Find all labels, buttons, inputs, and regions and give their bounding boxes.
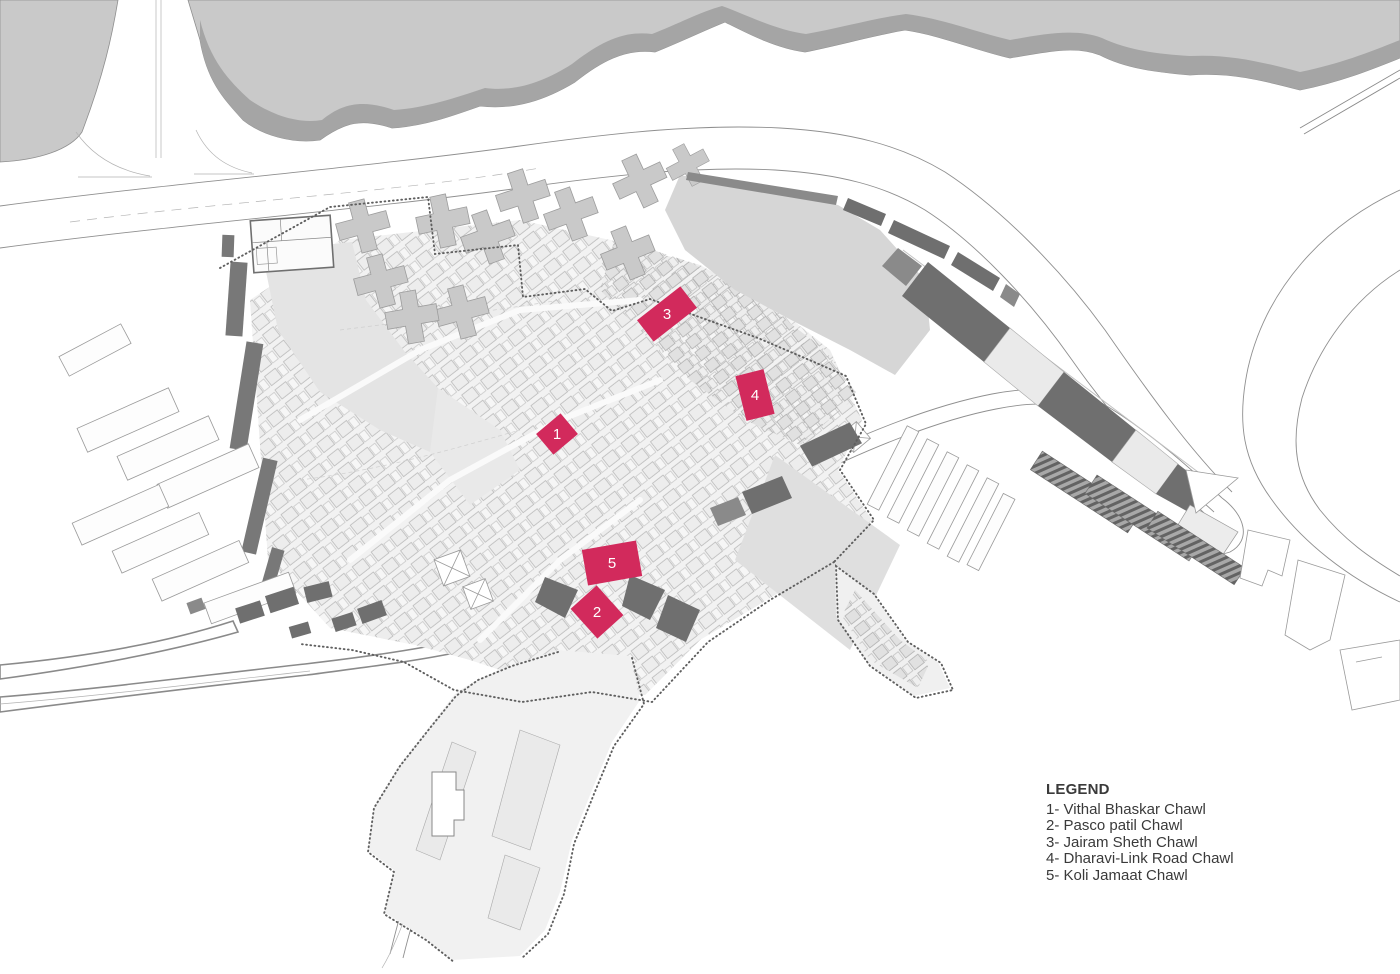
walled-compound <box>250 215 333 272</box>
legend-item-2: 2- Pasco patil Chawl <box>1046 818 1234 835</box>
junction-centerline <box>156 0 161 158</box>
cross-block <box>605 146 674 215</box>
ramp-east <box>194 130 254 174</box>
legend-title: LEGEND <box>1046 782 1234 799</box>
southeast-extension <box>835 565 950 696</box>
channel-lower <box>0 641 459 712</box>
chawl-marker-number: 3 <box>663 306 671 323</box>
ramp-west <box>76 132 152 177</box>
legend: LEGEND 1- Vithal Bhaskar Chawl2- Pasco p… <box>1046 782 1234 885</box>
legend-item-3: 3- Jairam Sheth Chawl <box>1046 835 1234 852</box>
wedge-block <box>882 248 1238 556</box>
river-bend-west <box>0 0 118 162</box>
highway-median <box>70 168 540 222</box>
chawl-marker-number: 4 <box>751 387 759 404</box>
legend-items: 1- Vithal Bhaskar Chawl2- Pasco patil Ch… <box>1046 802 1234 885</box>
east-road-inner <box>1296 270 1400 576</box>
legend-item-5: 5- Koli Jamaat Chawl <box>1046 868 1234 885</box>
chawl-marker-number: 1 <box>553 426 561 443</box>
chawl-marker-number: 2 <box>593 604 601 621</box>
water-layer <box>0 0 1400 162</box>
legend-item-4: 4- Dharavi-Link Road Chawl <box>1046 851 1234 868</box>
legend-item-1: 1- Vithal Bhaskar Chawl <box>1046 802 1234 819</box>
channel-upper <box>0 621 238 679</box>
south-extension <box>368 650 640 960</box>
east-outlined-buildings <box>1240 530 1400 710</box>
chawl-marker-number: 5 <box>608 555 616 572</box>
site-plan: 12345 LEGEND 1- Vithal Bhaskar Chawl2- P… <box>0 0 1400 974</box>
